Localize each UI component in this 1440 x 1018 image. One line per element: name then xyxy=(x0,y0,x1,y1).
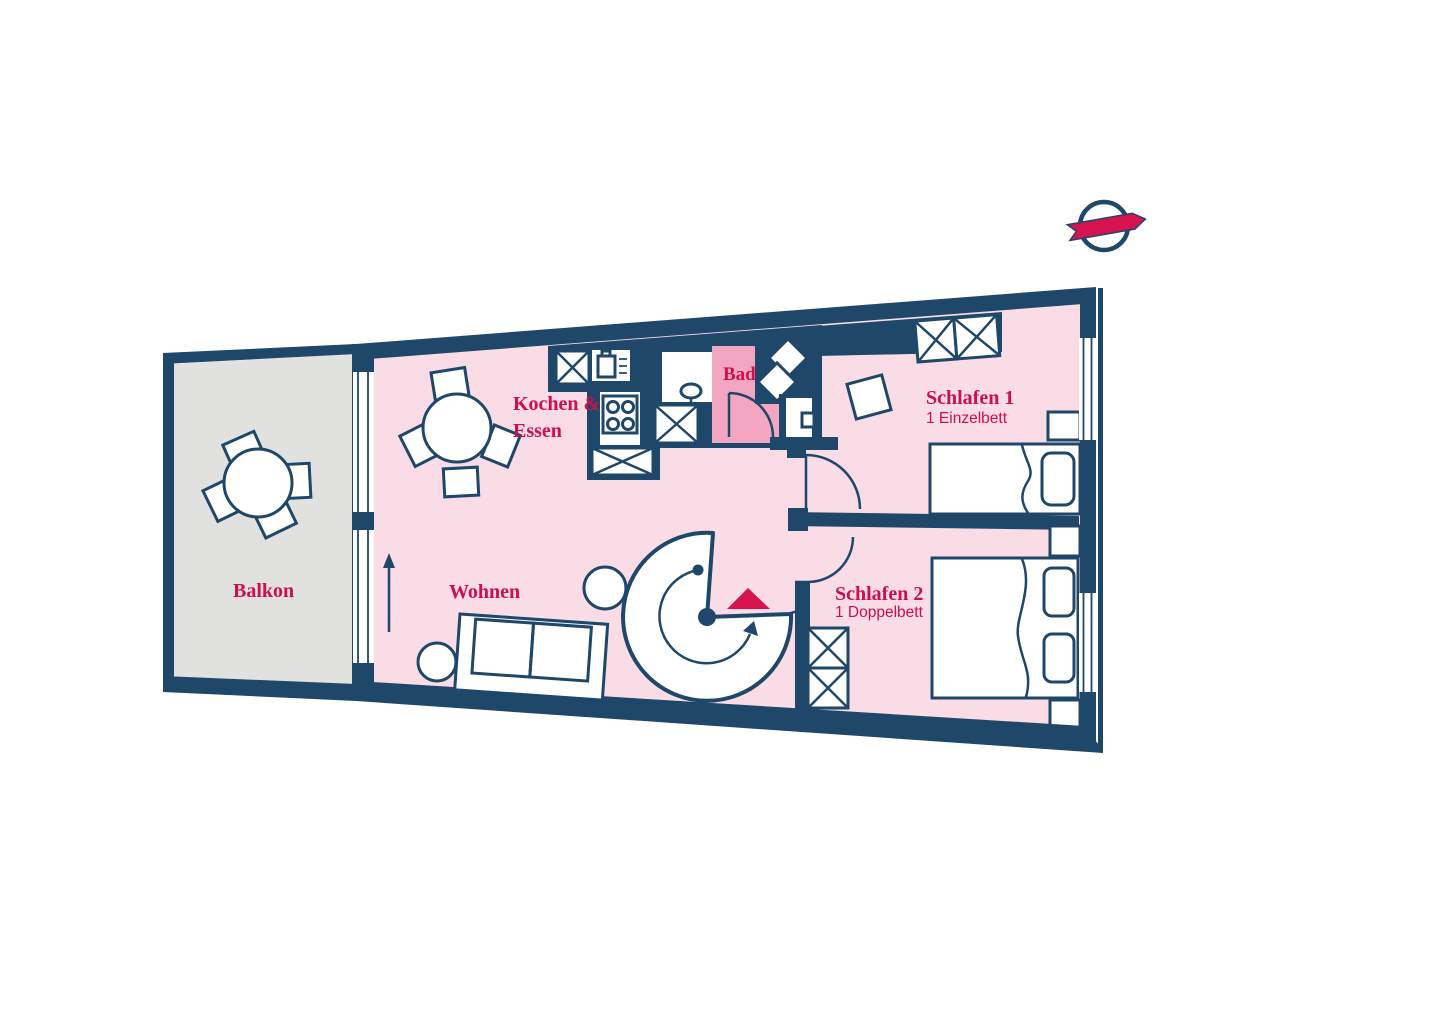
living-label: Wohnen xyxy=(449,581,520,603)
nightstand-icon xyxy=(1050,526,1080,556)
balcony-wall-left xyxy=(163,353,174,692)
bath-cabinet-icon xyxy=(655,405,698,443)
washbasin-icon xyxy=(662,352,718,406)
balcony-label: Balkon xyxy=(233,580,294,602)
window-icon xyxy=(1079,593,1098,692)
chair-icon xyxy=(443,467,478,497)
sofa-icon xyxy=(455,614,608,700)
window-icon xyxy=(353,372,374,512)
floor-plan-page: Balkon xyxy=(0,0,1440,1018)
window-icon xyxy=(353,530,374,663)
dining-table-icon xyxy=(423,394,491,462)
balcony-room: Balkon xyxy=(163,344,356,701)
bathroom-wall-bottom xyxy=(770,437,838,450)
outer-wall-right xyxy=(1079,288,1103,752)
bedroom2-label: Schlafen 2 xyxy=(835,583,923,605)
side-table-icon xyxy=(584,567,626,609)
outer-wall-right-lip xyxy=(1098,288,1103,752)
door-post xyxy=(787,450,806,458)
kitchen-cabinet-icon xyxy=(556,351,589,384)
nightstand-icon xyxy=(1048,412,1080,440)
wardrobe-icon xyxy=(808,628,848,708)
bedroom1-sublabel: 1 Einzelbett xyxy=(926,410,1008,427)
bedroom1-label: Schlafen 1 xyxy=(926,387,1014,409)
double-bed-icon xyxy=(932,558,1078,698)
floor-plan-svg: Balkon xyxy=(0,0,1440,1018)
logo xyxy=(1067,202,1147,250)
toilet-flush-icon xyxy=(802,413,814,427)
bath-label: Bad xyxy=(723,364,756,385)
side-table-icon xyxy=(418,643,456,681)
bedroom2-sublabel: 1 Doppelbett xyxy=(835,604,924,621)
kitchen-label-line1: Kochen & xyxy=(513,393,600,415)
single-bed-icon xyxy=(930,444,1080,514)
balcony-door-wall xyxy=(352,344,374,690)
stove-icon xyxy=(600,392,640,445)
kitchen-counter-icon xyxy=(592,448,653,475)
sink-icon xyxy=(592,350,630,381)
dining-table-icon xyxy=(224,449,292,517)
stool-icon xyxy=(847,375,891,419)
window-icon xyxy=(1079,338,1098,440)
wardrobe-icon xyxy=(915,315,1000,362)
kitchen-label-line2: Essen xyxy=(513,420,562,442)
